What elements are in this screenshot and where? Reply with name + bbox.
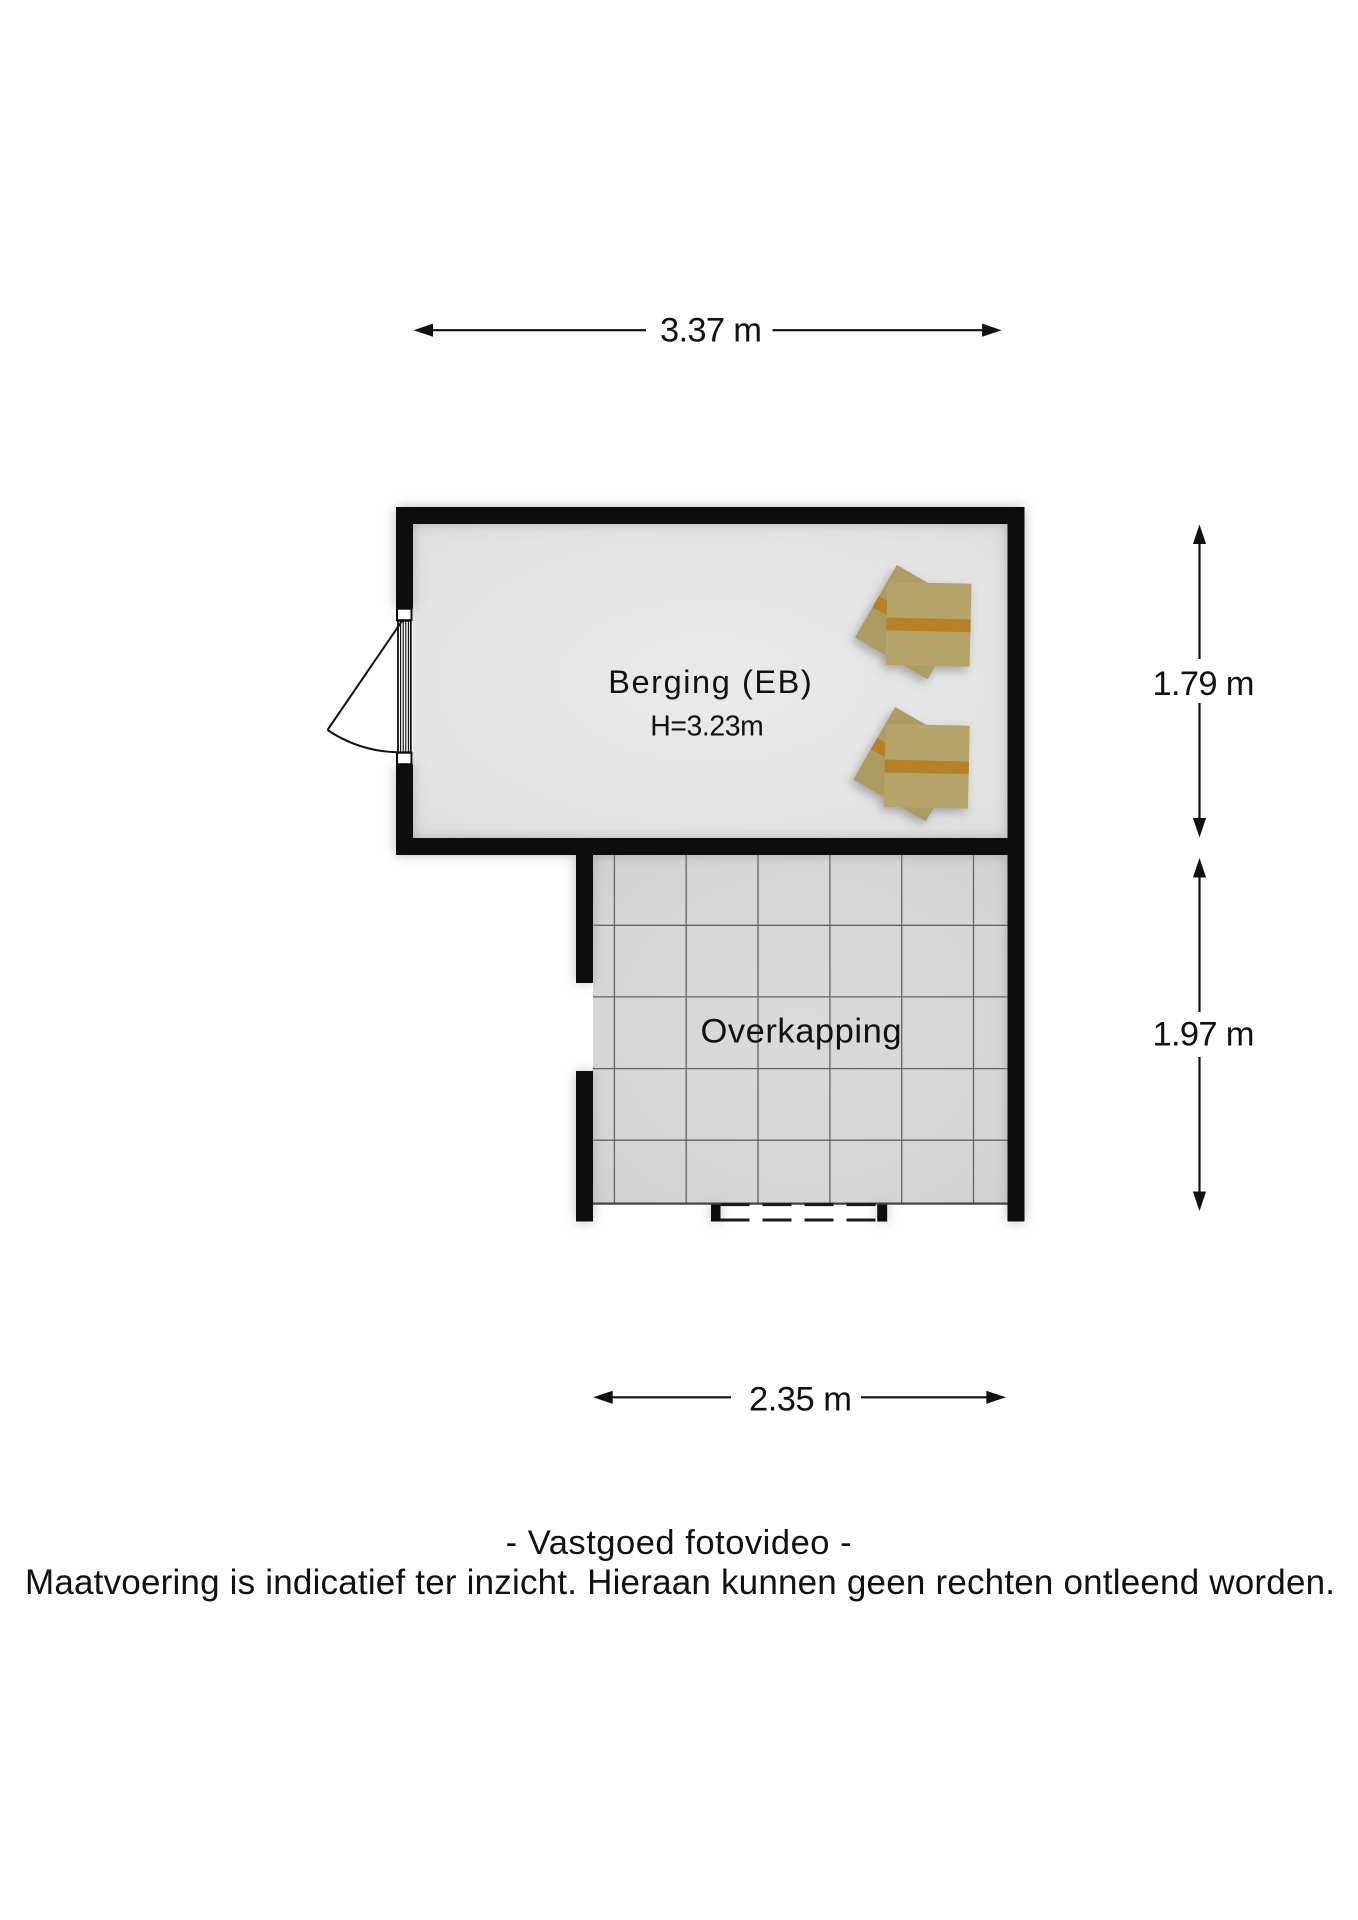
svg-text:1.97 m: 1.97 m — [1153, 1016, 1255, 1054]
svg-text:- Vastgoed fotovideo -: - Vastgoed fotovideo - — [506, 1524, 852, 1562]
svg-text:H=3.23m: H=3.23m — [650, 710, 764, 742]
svg-text:1.79 m: 1.79 m — [1153, 665, 1255, 703]
svg-text:3.37 m: 3.37 m — [660, 312, 762, 350]
svg-text:2.35 m: 2.35 m — [749, 1381, 852, 1419]
svg-text:Overkapping: Overkapping — [701, 1012, 902, 1050]
svg-text:Berging (EB): Berging (EB) — [608, 664, 812, 700]
svg-text:Maatvoering is indicatief ter: Maatvoering is indicatief ter inzicht. H… — [25, 1563, 1335, 1602]
